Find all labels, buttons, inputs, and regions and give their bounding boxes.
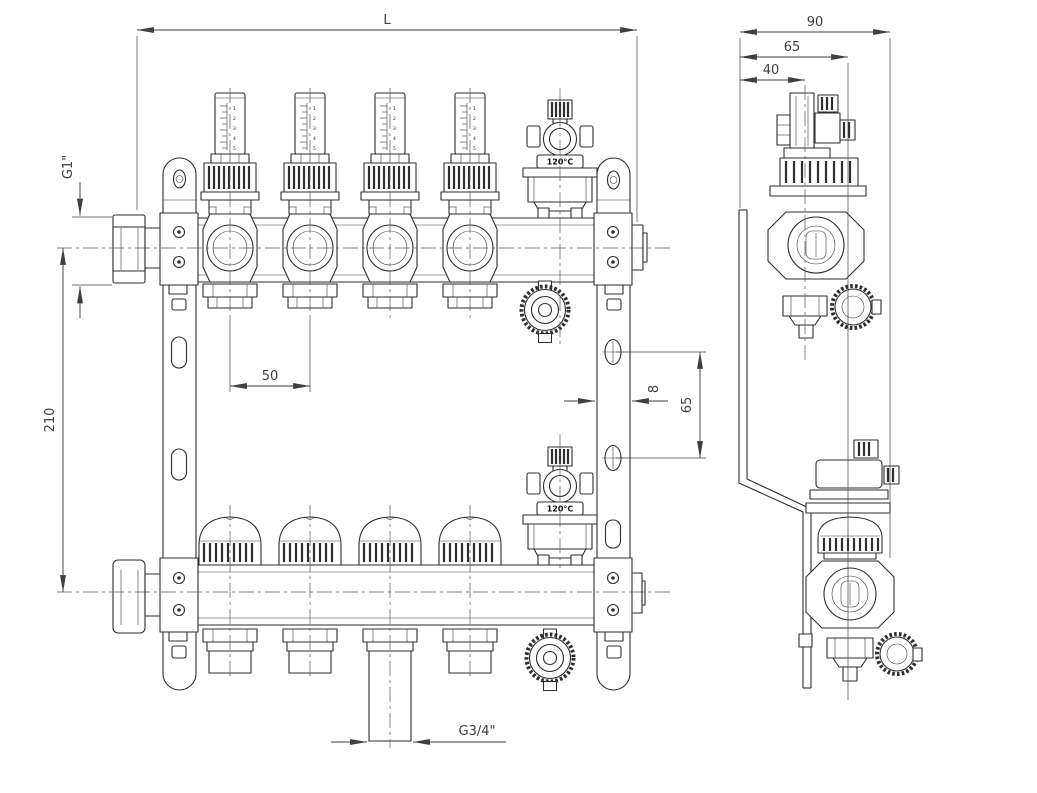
drain-valve-bottom bbox=[527, 629, 574, 691]
dim-label-210: 210 bbox=[43, 408, 58, 433]
dim-label-65-front: 65 bbox=[680, 397, 695, 414]
dim-label-G1: G1" bbox=[61, 155, 76, 179]
side-top-valve-assembly bbox=[768, 93, 881, 338]
left-mounting-bracket bbox=[160, 158, 198, 690]
dim-label-90: 90 bbox=[807, 15, 824, 30]
right-mounting-bracket bbox=[594, 158, 632, 690]
dimension-top-bar-depth: 40 bbox=[740, 63, 805, 80]
dimension-circuit-spacing: 50 bbox=[230, 318, 310, 392]
dim-label-8: 8 bbox=[647, 385, 662, 393]
side-drain-valve-top bbox=[832, 286, 881, 328]
side-drain-stub bbox=[840, 120, 855, 140]
side-bottom-valve-assembly bbox=[799, 440, 922, 681]
drain-valve-top bbox=[522, 281, 569, 343]
front-view: L G1" 210 50 8 bbox=[43, 13, 706, 748]
technical-drawing-heating-manifold: 1 2 3 4 5 bbox=[0, 0, 1037, 793]
dimension-outlet-thread: G3/4" bbox=[331, 724, 506, 742]
inlet-nut-bottom bbox=[113, 560, 145, 633]
dim-label-40: 40 bbox=[763, 63, 780, 78]
dimension-bottom-bar-depth: 65 bbox=[740, 40, 848, 57]
side-view: 90 65 40 bbox=[739, 15, 922, 700]
dim-label-G34: G3/4" bbox=[459, 724, 496, 739]
dim-label-L: L bbox=[383, 13, 391, 28]
dimension-bar-center-distance: 210 bbox=[43, 248, 63, 592]
dim-label-50: 50 bbox=[262, 369, 279, 384]
side-air-vent bbox=[810, 440, 899, 499]
side-bracket-profile bbox=[739, 210, 811, 688]
dim-label-65-side: 65 bbox=[784, 40, 801, 55]
dimension-inlet-thread: G1" bbox=[61, 155, 112, 318]
side-drain-valve-bottom bbox=[877, 634, 922, 674]
